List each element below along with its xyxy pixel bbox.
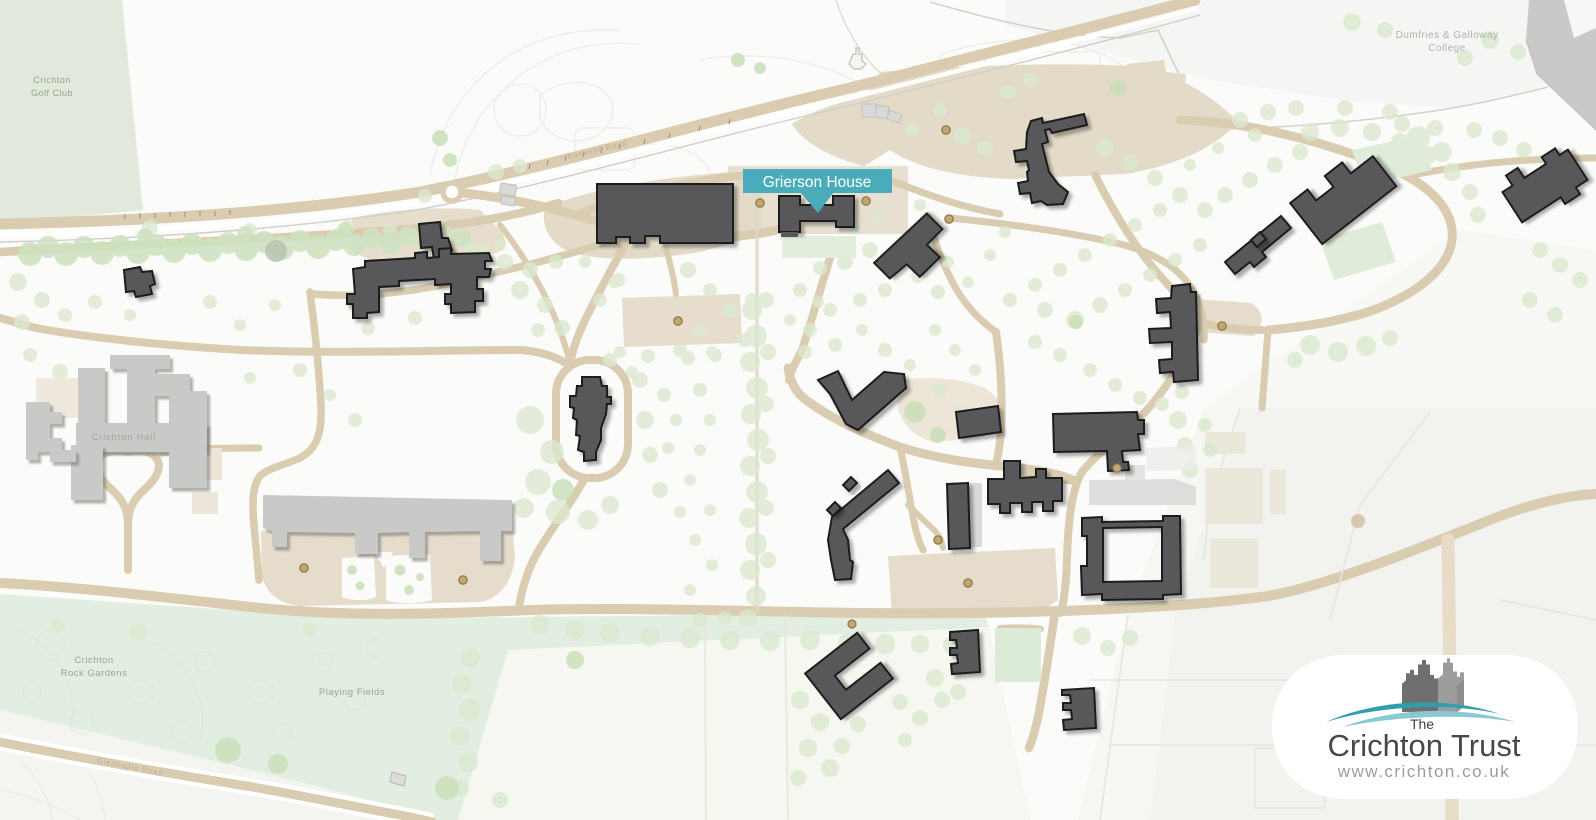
svg-text:www.crichton.co.uk: www.crichton.co.uk — [1337, 762, 1511, 781]
svg-text:College: College — [1428, 43, 1465, 54]
svg-text:Dumfries & Galloway: Dumfries & Galloway — [1396, 30, 1499, 41]
svg-text:Crichton: Crichton — [74, 655, 113, 666]
svg-text:Golf Club: Golf Club — [31, 88, 73, 98]
svg-text:Grierson House: Grierson House — [763, 174, 872, 191]
svg-text:Crichton Trust: Crichton Trust — [1328, 728, 1521, 763]
svg-text:Crichton Hall: Crichton Hall — [92, 432, 157, 442]
svg-text:Rock Gardens: Rock Gardens — [61, 668, 128, 679]
svg-text:Crichton: Crichton — [33, 75, 71, 85]
svg-text:Playing Fields: Playing Fields — [319, 687, 385, 698]
